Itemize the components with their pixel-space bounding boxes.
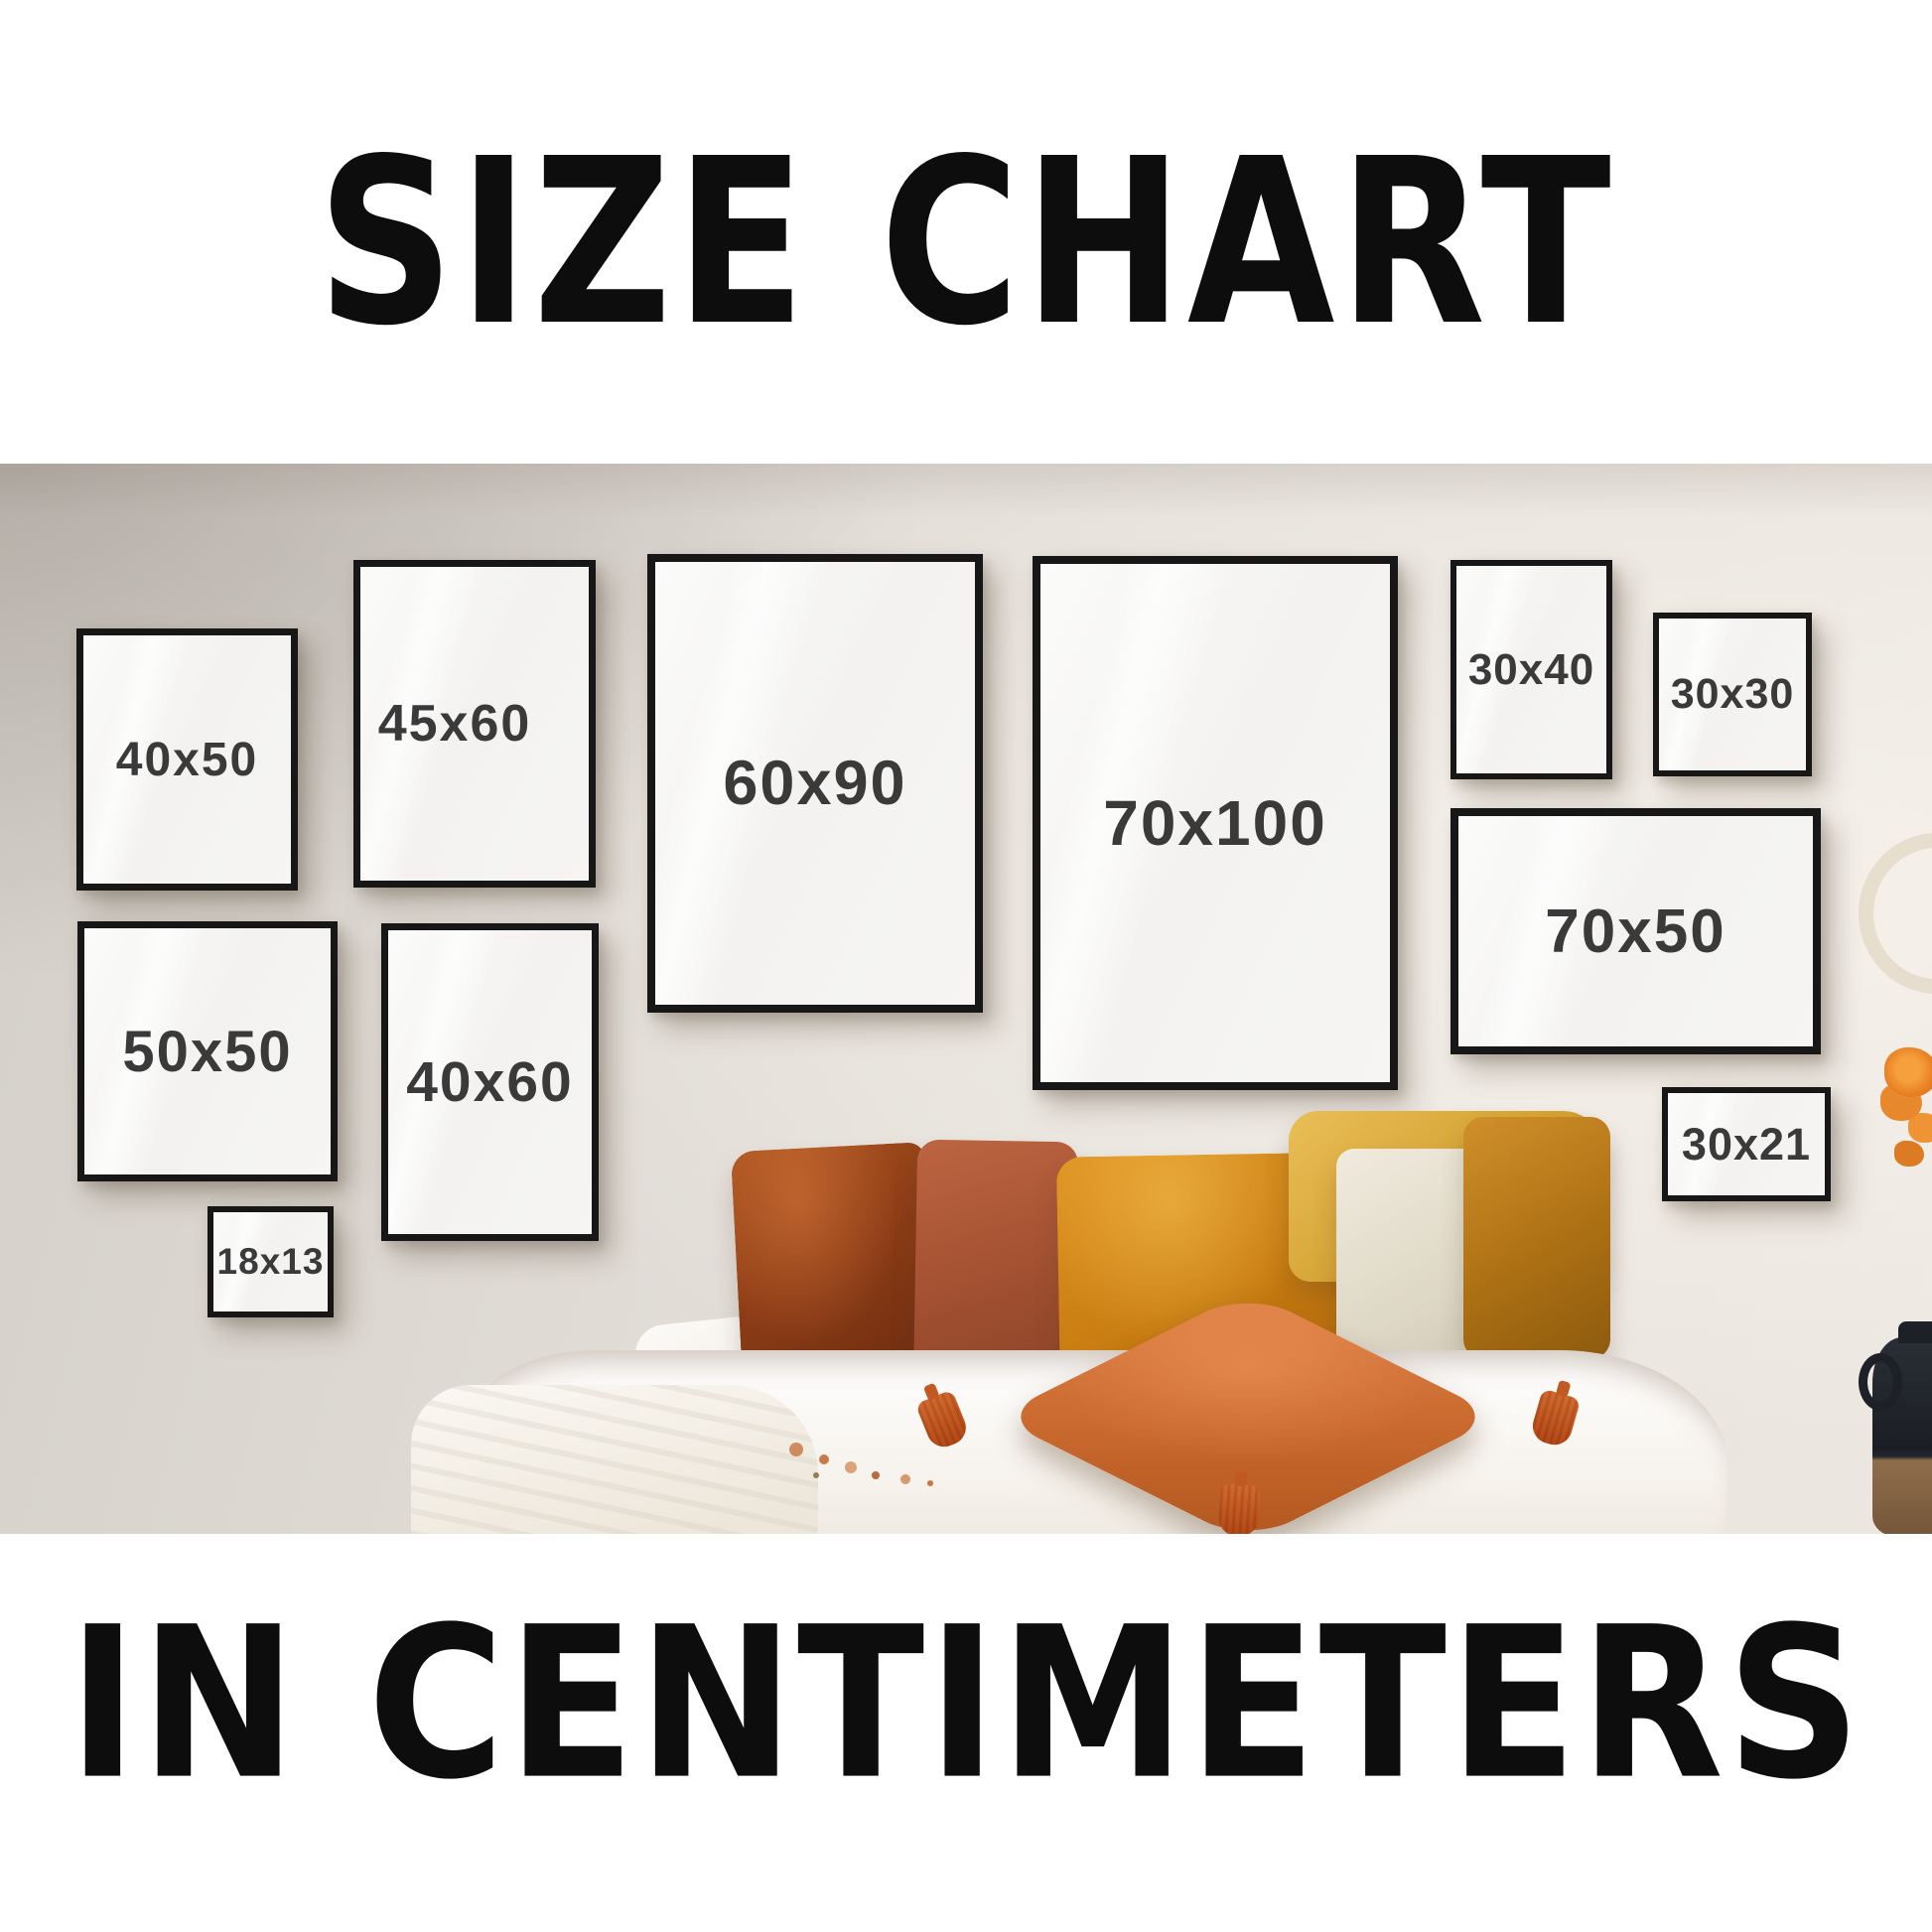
page-title: SIZE CHART <box>0 149 1932 340</box>
size-label-40x60: 40x60 <box>406 1049 574 1115</box>
size-label-70x50: 70x50 <box>1545 897 1725 967</box>
size-label-70x100: 70x100 <box>1103 786 1327 860</box>
frame-45x60-glass: 45x60 <box>360 567 589 881</box>
frame-60x90-glass: 60x90 <box>655 562 975 1005</box>
size-label-30x30: 30x30 <box>1671 670 1795 719</box>
size-chart-poster: SIZE CHART 40x50 45x60 60x90 70x100 <box>0 0 1932 1932</box>
size-label-40x50: 40x50 <box>116 733 258 787</box>
amber-pillow <box>1463 1117 1610 1359</box>
frame-70x50-glass: 70x50 <box>1458 816 1813 1046</box>
frame-30x21: 30x21 <box>1662 1087 1831 1201</box>
pillow-tassel <box>1217 1483 1261 1534</box>
frame-30x30-glass: 30x30 <box>1659 619 1806 770</box>
frame-40x60-glass: 40x60 <box>388 930 592 1234</box>
dark-vase <box>1872 1337 1932 1534</box>
frame-50x50: 50x50 <box>77 921 338 1181</box>
page-subtitle: IN CENTIMETERS <box>0 1611 1932 1798</box>
frame-60x90: 60x90 <box>647 554 983 1013</box>
page-subtitle-text: IN CENTIMETERS <box>69 1600 1864 1810</box>
bottom-banner: IN CENTIMETERS <box>0 1534 1932 1932</box>
page-title-text: SIZE CHART <box>317 130 1614 358</box>
frame-50x50-glass: 50x50 <box>84 928 331 1174</box>
size-label-18x13: 18x13 <box>217 1241 325 1283</box>
frame-30x21-glass: 30x21 <box>1668 1093 1825 1195</box>
size-label-30x40: 30x40 <box>1468 645 1594 695</box>
frame-18x13-glass: 18x13 <box>213 1212 328 1311</box>
orange-flower-decor <box>1884 1047 1932 1097</box>
frame-45x60: 45x60 <box>353 560 596 888</box>
dried-flower-sprig <box>789 1443 803 1456</box>
size-label-60x90: 60x90 <box>723 748 906 819</box>
frame-70x100-glass: 70x100 <box>1040 564 1390 1082</box>
frame-40x50-glass: 40x50 <box>83 635 291 884</box>
frame-30x30: 30x30 <box>1653 613 1812 776</box>
frame-70x100: 70x100 <box>1033 556 1398 1090</box>
frame-40x50: 40x50 <box>76 628 298 891</box>
top-banner: SIZE CHART <box>0 0 1932 464</box>
knit-throw-blanket <box>411 1385 818 1534</box>
dried-wreath-decor <box>1859 833 1932 994</box>
frame-30x40: 30x40 <box>1450 560 1612 779</box>
size-label-30x21: 30x21 <box>1682 1119 1811 1171</box>
frame-30x40-glass: 30x40 <box>1456 566 1606 773</box>
bedroom-photo: 40x50 45x60 60x90 70x100 30x40 30x3 <box>0 464 1932 1534</box>
frame-18x13: 18x13 <box>207 1206 334 1317</box>
frame-40x60: 40x60 <box>381 923 599 1241</box>
frame-70x50: 70x50 <box>1450 808 1821 1054</box>
size-label-45x60: 45x60 <box>378 694 532 754</box>
size-label-50x50: 50x50 <box>122 1019 292 1085</box>
